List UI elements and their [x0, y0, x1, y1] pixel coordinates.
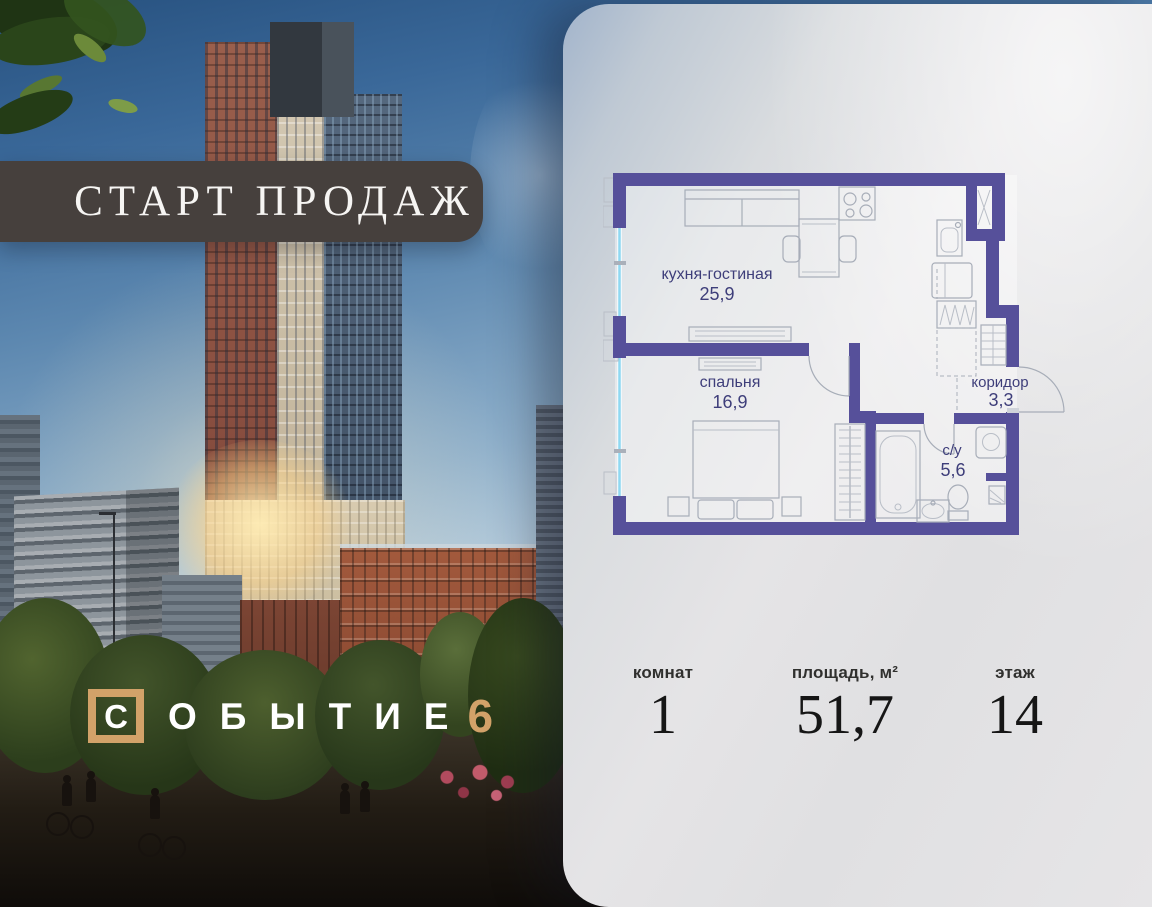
- stat-label: комнат: [601, 663, 725, 683]
- room-area: 16,9: [712, 392, 747, 412]
- bicycle-wheel: [138, 833, 162, 857]
- person-silhouette: [150, 795, 160, 819]
- stat-floor: этаж 14: [953, 663, 1077, 745]
- sobytie-logo: С ОБЫТИЕ 6: [88, 689, 493, 743]
- stat-area: площадь, м² 51,7: [763, 663, 927, 745]
- person-silhouette: [86, 778, 96, 802]
- bicycle-wheel: [46, 812, 70, 836]
- stat-rooms: комнат 1: [601, 663, 725, 745]
- room-label: коридор: [971, 374, 1028, 391]
- promo-poster: СТАРТ ПРОДАЖ С ОБЫТИЕ 6: [0, 0, 1152, 907]
- stat-label: этаж: [953, 663, 1077, 683]
- apartment-card: кухня-гостиная 25,9 спальня 16,9 коридор…: [563, 4, 1152, 907]
- tree-branch: [107, 96, 139, 115]
- person-silhouette: [340, 790, 350, 814]
- room-area: 5,6: [940, 460, 965, 480]
- floor-plan: кухня-гостиная 25,9 спальня 16,9 коридор…: [603, 166, 1073, 551]
- tower-top-block: [270, 22, 354, 117]
- stat-label: площадь, м²: [763, 663, 927, 683]
- room-label: с/у: [942, 442, 962, 459]
- start-sales-banner: СТАРТ ПРОДАЖ: [0, 161, 483, 242]
- logo-word: ОБЫТИЕ: [168, 698, 471, 735]
- person-silhouette: [360, 788, 370, 812]
- room-area: 3,3: [988, 390, 1013, 410]
- room-label: спальня: [700, 374, 761, 391]
- room-area: 25,9: [699, 284, 734, 304]
- bicycle-wheel: [162, 836, 186, 860]
- stat-value: 14: [953, 686, 1077, 745]
- stat-value: 51,7: [763, 686, 927, 745]
- logo-letter-box: С: [88, 689, 144, 743]
- banner-text: СТАРТ ПРОДАЖ: [74, 177, 475, 226]
- bicycle-wheel: [70, 815, 94, 839]
- logo-number: 6: [467, 693, 493, 739]
- flower-bed: [425, 758, 535, 806]
- stat-value: 1: [601, 686, 725, 745]
- person-silhouette: [62, 782, 72, 806]
- street-lamp-arm: [99, 512, 116, 515]
- logo-boxed-letter: С: [104, 700, 128, 733]
- apartment-stats: комнат 1 площадь, м² 51,7 этаж 14: [563, 663, 1152, 773]
- room-label: кухня-гостиная: [661, 266, 772, 283]
